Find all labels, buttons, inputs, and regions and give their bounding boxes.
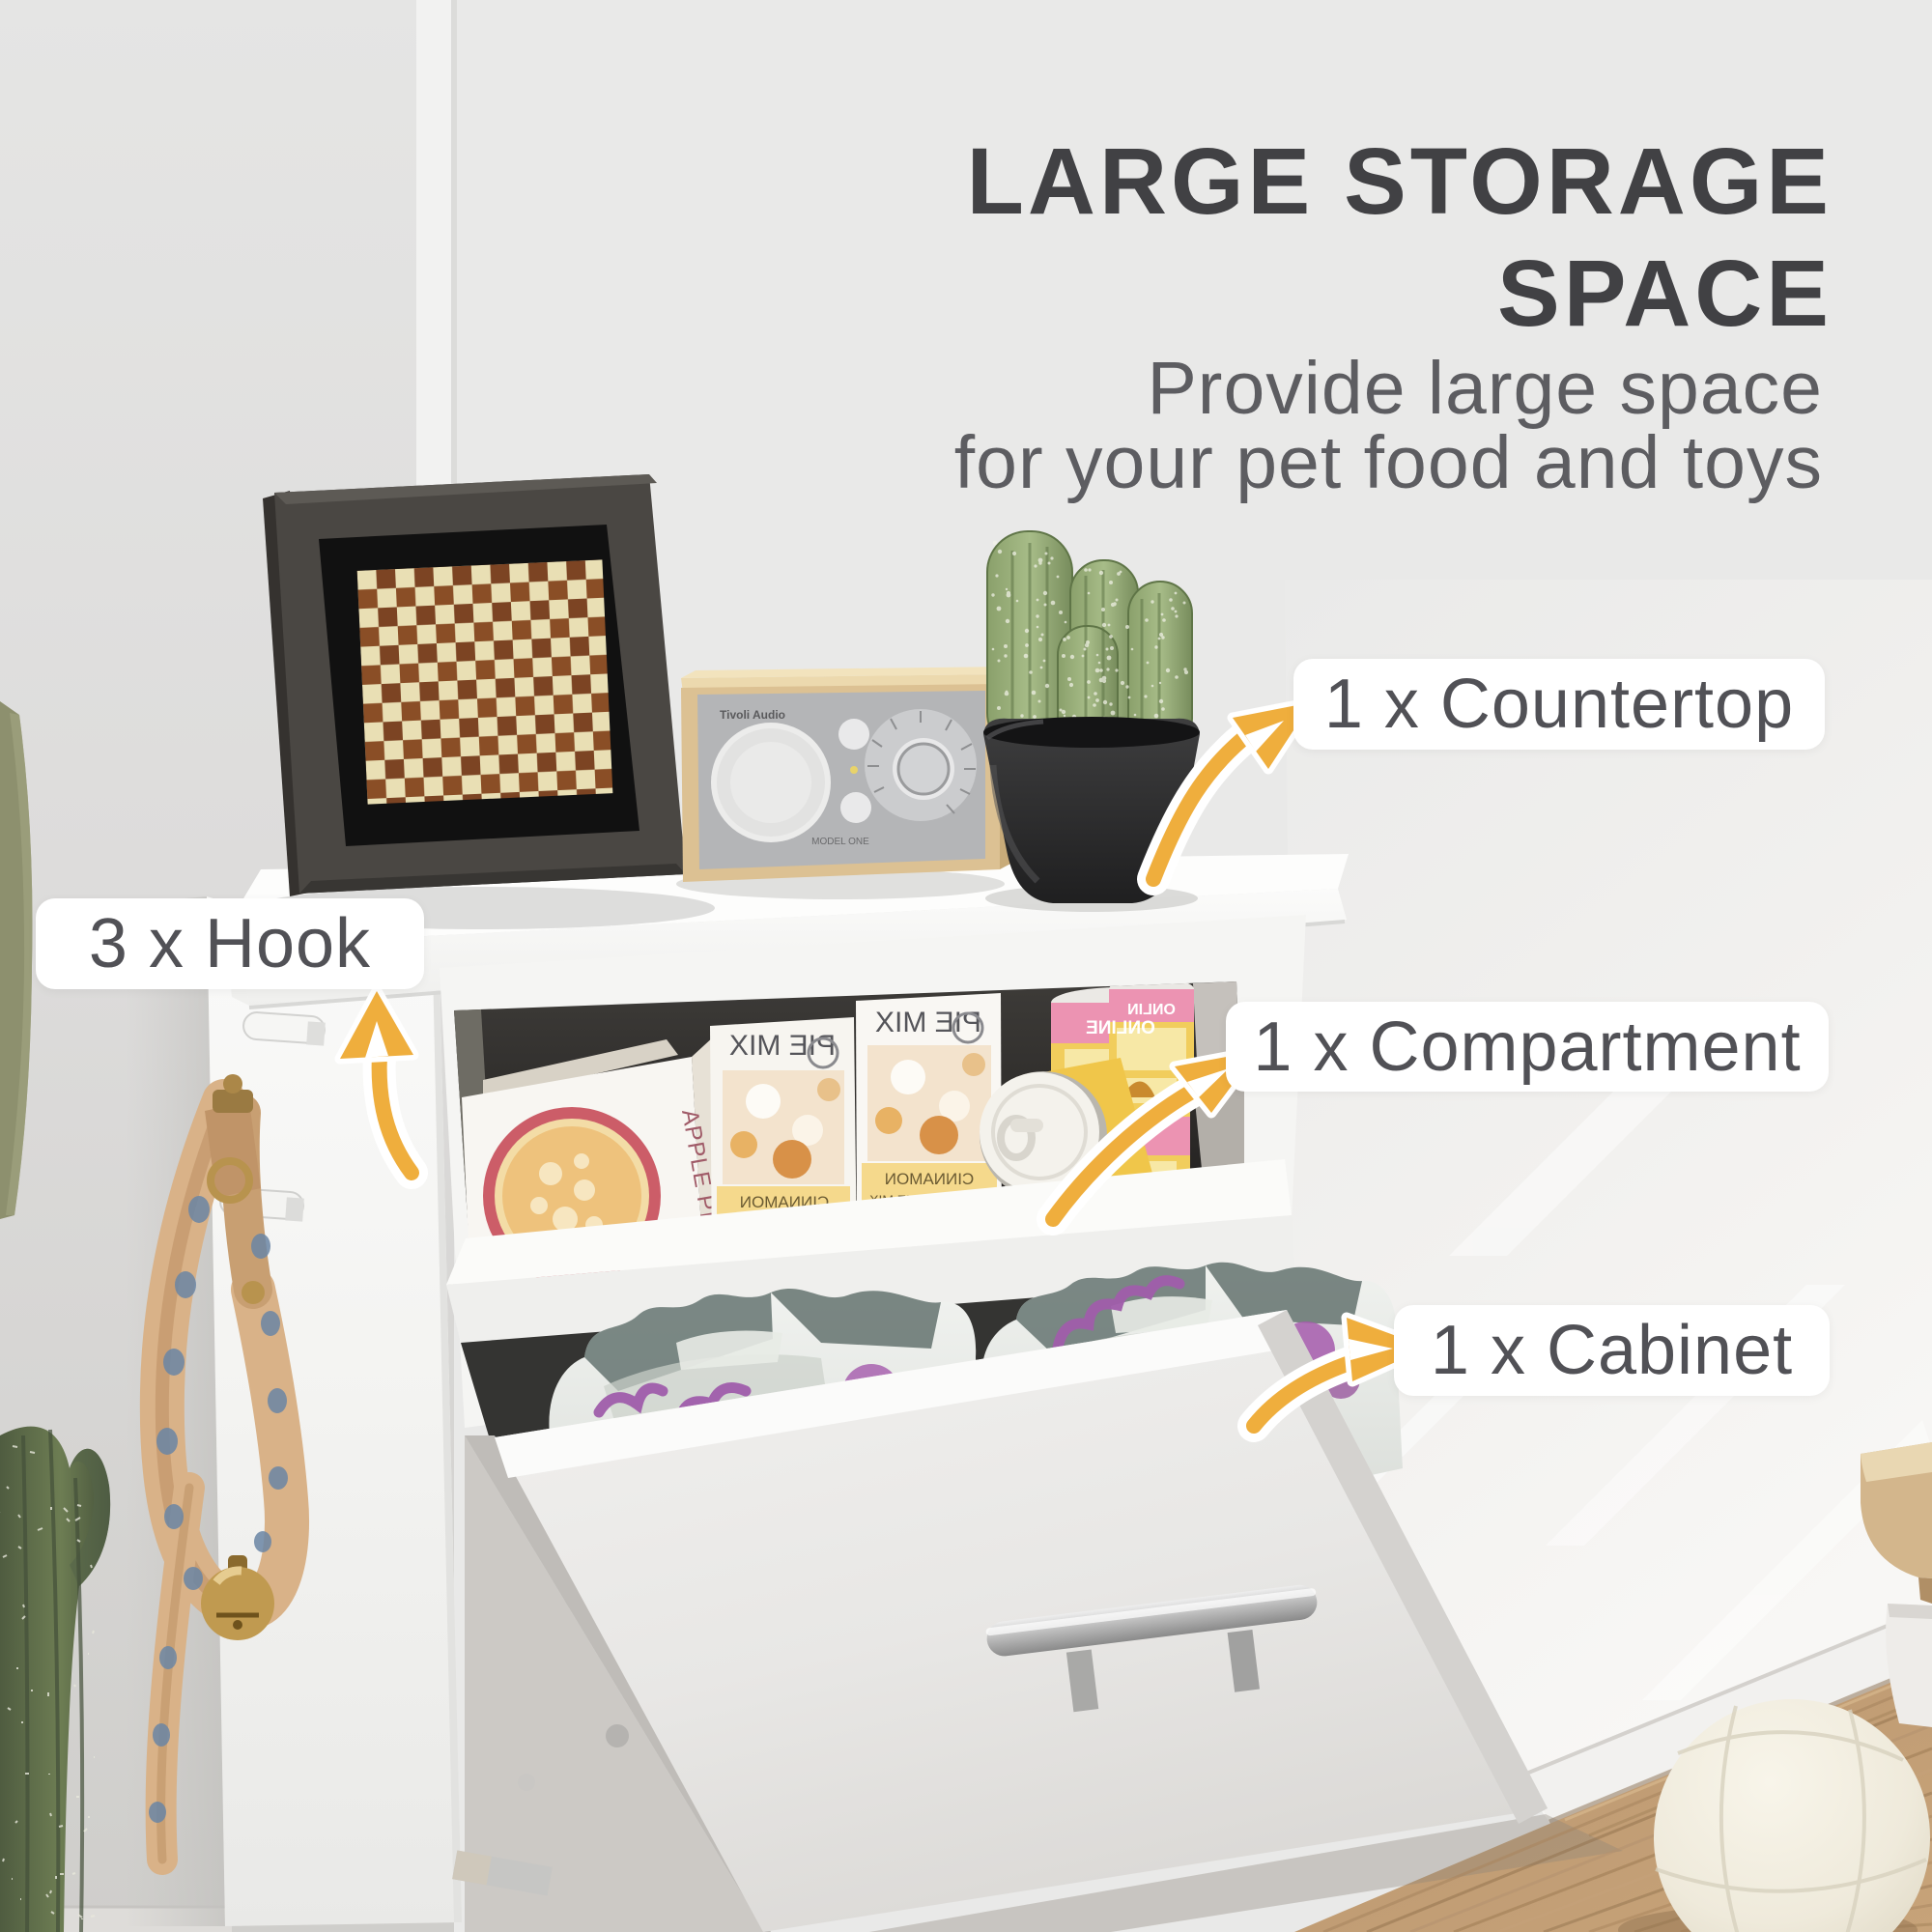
svg-text:ONLINE: ONLINE [1086,1018,1155,1038]
svg-text:MODEL ONE: MODEL ONE [811,837,869,847]
svg-text:CINNAMON: CINNAMON [885,1170,975,1188]
svg-text:Tivoli Audio: Tivoli Audio [720,708,785,722]
svg-text:PIE MIX: PIE MIX [875,1007,981,1038]
svg-text:PIE MIX: PIE MIX [729,1030,836,1062]
svg-text:ONLIN: ONLIN [1127,1002,1176,1018]
